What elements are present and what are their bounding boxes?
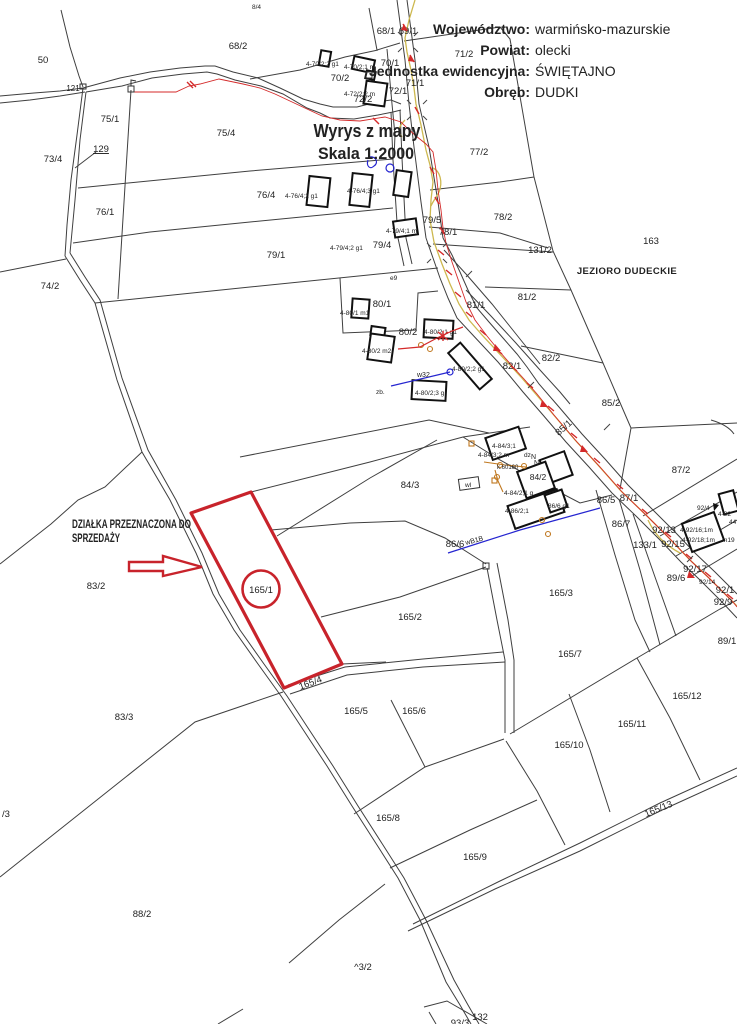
svg-text:79/1: 79/1 <box>267 250 286 261</box>
svg-text:68/1: 68/1 <box>377 26 396 37</box>
svg-text:4-92/18;1m: 4-92/18;1m <box>682 537 715 544</box>
svg-text:93/3: 93/3 <box>451 1018 470 1024</box>
svg-text:olecki: olecki <box>535 42 571 58</box>
svg-text:88/2: 88/2 <box>133 909 152 920</box>
svg-text:e9: e9 <box>390 275 398 282</box>
svg-text:163: 163 <box>643 236 659 247</box>
svg-text:78/2: 78/2 <box>494 212 513 223</box>
svg-text:85/2: 85/2 <box>602 398 621 409</box>
svg-text:72/1: 72/1 <box>389 86 408 97</box>
svg-text:Jednostka ewidencyjna:: Jednostka ewidencyjna: <box>369 63 530 79</box>
svg-text:133/1: 133/1 <box>633 540 657 551</box>
svg-text:warmińsko-mazurskie: warmińsko-mazurskie <box>534 21 671 37</box>
svg-text:129: 129 <box>93 144 109 155</box>
svg-text:92/9: 92/9 <box>714 597 733 608</box>
svg-text:83/3: 83/3 <box>115 712 134 723</box>
svg-text:80/2: 80/2 <box>399 327 418 338</box>
svg-text:165/1: 165/1 <box>249 585 273 596</box>
svg-text:165/11: 165/11 <box>618 719 646 730</box>
svg-text:76/4: 76/4 <box>257 190 276 201</box>
svg-text:92/1: 92/1 <box>716 585 735 596</box>
svg-text:8/4: 8/4 <box>252 4 261 11</box>
svg-text:131/2: 131/2 <box>528 245 552 256</box>
svg-text:77/2: 77/2 <box>470 147 489 158</box>
svg-text:JEZIORO DUDECKIE: JEZIORO DUDECKIE <box>577 266 677 277</box>
svg-text:wl: wl <box>464 482 472 489</box>
svg-text:84/3: 84/3 <box>401 480 420 491</box>
svg-text:81/1: 81/1 <box>467 300 486 311</box>
svg-text:DZIAŁKA PRZEZNACZONA DO: DZIAŁKA PRZEZNACZONA DO <box>72 517 191 531</box>
svg-text:44: 44 <box>729 519 737 526</box>
svg-text:4-84/2;1 g: 4-84/2;1 g <box>504 490 534 497</box>
svg-text:Powiat:: Powiat: <box>480 42 530 58</box>
svg-text:4-76/4;3 g1: 4-76/4;3 g1 <box>347 188 380 195</box>
svg-text:w32: w32 <box>416 372 430 379</box>
svg-text:Skala 1:2000: Skala 1:2000 <box>318 144 414 163</box>
svg-text:73/4: 73/4 <box>44 154 63 165</box>
svg-text:92/14: 92/14 <box>699 579 716 586</box>
svg-text:^3/2: ^3/2 <box>354 962 372 973</box>
svg-text:DUDKI: DUDKI <box>535 84 579 100</box>
svg-text:zb.: zb. <box>376 389 385 396</box>
svg-text:Obręb:: Obręb: <box>484 84 530 100</box>
svg-text:4-80/2;2 g1: 4-80/2;2 g1 <box>452 366 485 373</box>
svg-text:165/7: 165/7 <box>558 649 582 660</box>
svg-text:4-86/2;1: 4-86/2;1 <box>505 508 529 515</box>
svg-text:Województwo:: Województwo: <box>433 21 530 37</box>
svg-text:84/2: 84/2 <box>530 472 547 482</box>
svg-text:/3: /3 <box>2 809 10 820</box>
svg-text:165/10: 165/10 <box>554 740 583 751</box>
svg-text:132: 132 <box>472 1012 488 1023</box>
svg-text:4-76/4;2 g1: 4-76/4;2 g1 <box>285 193 318 200</box>
svg-text:74/2: 74/2 <box>41 281 60 292</box>
svg-text:76/1: 76/1 <box>96 207 115 218</box>
svg-text:4-70/2;2 g1: 4-70/2;2 g1 <box>306 61 339 68</box>
svg-text:71/1: 71/1 <box>406 78 425 89</box>
svg-text:79/5: 79/5 <box>423 215 442 226</box>
svg-text:165/2: 165/2 <box>398 612 422 623</box>
svg-text:70/2: 70/2 <box>331 73 350 84</box>
svg-text:82/2: 82/2 <box>542 353 561 364</box>
svg-text:86/5: 86/5 <box>597 495 616 506</box>
svg-text:SPRZEDAŻY: SPRZEDAŻY <box>72 530 120 545</box>
svg-text:92/13: 92/13 <box>652 525 676 536</box>
svg-text:4-80/1 m1: 4-80/1 m1 <box>340 310 370 317</box>
svg-text:86/6 g1: 86/6 g1 <box>548 503 570 510</box>
svg-text:dz: dz <box>524 452 531 459</box>
svg-text:80/1: 80/1 <box>373 299 392 310</box>
svg-text:89/1: 89/1 <box>718 636 737 647</box>
svg-text:m19: m19 <box>722 537 735 544</box>
svg-text:165/6: 165/6 <box>402 706 426 717</box>
svg-text:Wyrys z mapy: Wyrys z mapy <box>314 121 421 141</box>
svg-text:121: 121 <box>66 84 80 93</box>
svg-text:83/2: 83/2 <box>87 581 106 592</box>
svg-text:4-80/2;3 g: 4-80/2;3 g <box>415 390 445 397</box>
svg-text:4-92: 4-92 <box>718 511 731 518</box>
svg-text:4-79/4;2 g1: 4-79/4;2 g1 <box>330 245 363 252</box>
svg-text:165/12: 165/12 <box>672 691 701 702</box>
svg-text:86/7: 86/7 <box>612 519 631 530</box>
svg-text:4-72/2;2 m: 4-72/2;2 m <box>344 91 375 98</box>
svg-text:87/1: 87/1 <box>620 493 639 504</box>
svg-text:165/5: 165/5 <box>344 706 368 717</box>
svg-text:92/4: 92/4 <box>697 505 710 512</box>
svg-text:81/2: 81/2 <box>518 292 537 303</box>
svg-text:165/8: 165/8 <box>376 813 400 824</box>
svg-text:N: N <box>534 460 539 467</box>
svg-text:71/2: 71/2 <box>455 49 474 60</box>
svg-text:4-79/4;1 m: 4-79/4;1 m <box>386 228 417 235</box>
svg-text:50: 50 <box>38 55 49 66</box>
svg-text:68/2: 68/2 <box>229 41 248 52</box>
svg-text:79/4: 79/4 <box>373 240 392 251</box>
svg-text:87/2: 87/2 <box>672 465 691 476</box>
svg-text:4-80/2 m2: 4-80/2 m2 <box>362 348 392 355</box>
svg-text:4-92/16;1m: 4-92/16;1m <box>680 527 713 534</box>
svg-text:92/17: 92/17 <box>683 564 707 575</box>
svg-text:k.60160: k.60160 <box>497 465 519 471</box>
svg-text:165/3: 165/3 <box>549 588 573 599</box>
svg-text:75/4: 75/4 <box>217 128 236 139</box>
svg-text:ŚWIĘTAJNO: ŚWIĘTAJNO <box>535 62 616 79</box>
svg-text:4-84/3;2 m: 4-84/3;2 m <box>478 452 509 459</box>
svg-text:165/9: 165/9 <box>463 852 487 863</box>
svg-text:75/1: 75/1 <box>101 114 120 125</box>
svg-text:4-84/3;1: 4-84/3;1 <box>492 443 516 450</box>
